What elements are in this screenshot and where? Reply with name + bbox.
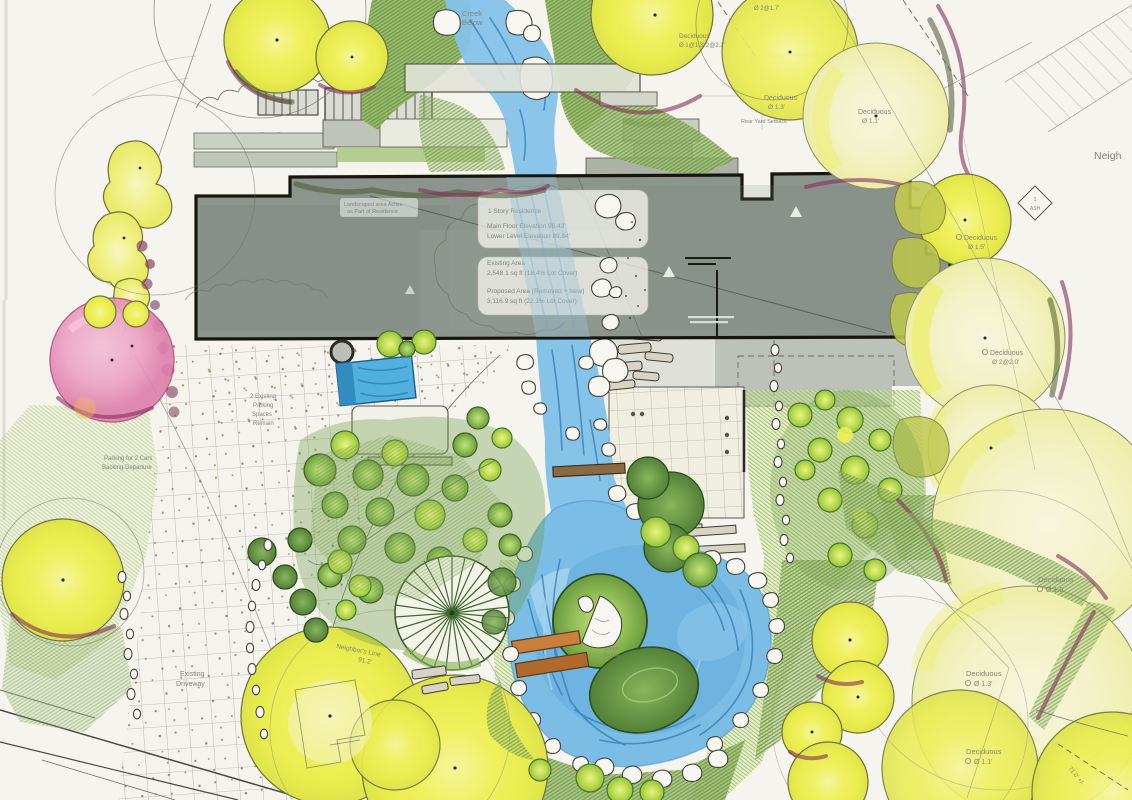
- svg-text:Deciduous: Deciduous: [966, 747, 1002, 756]
- svg-text:Deciduous: Deciduous: [964, 235, 998, 242]
- svg-text:Ø 1.3': Ø 1.3': [768, 104, 785, 111]
- svg-text:Deciduous: Deciduous: [990, 350, 1024, 357]
- svg-text:Ø 1.0': Ø 1.0': [1046, 587, 1064, 594]
- svg-text:Rear Yard Setback: Rear Yard Setback: [741, 119, 787, 125]
- svg-text:Ø 2@2.0': Ø 2@2.0': [992, 359, 1019, 366]
- svg-text:Creek: Creek: [604, 646, 619, 652]
- svg-text:Neigh: Neigh: [1094, 150, 1122, 162]
- svg-text:Parking for 2 Cars: Parking for 2 Cars: [104, 456, 152, 462]
- svg-text:Deciduous: Deciduous: [764, 95, 798, 102]
- svg-text:Deciduous: Deciduous: [1038, 575, 1074, 584]
- svg-text:Below: Below: [604, 653, 619, 659]
- svg-text:Deciduous: Deciduous: [679, 33, 710, 40]
- svg-text:Ø 1@1.3' 2@2.2': Ø 1@1.3' 2@2.2': [679, 43, 725, 49]
- svg-text:Parking: Parking: [253, 403, 273, 409]
- svg-text:1: 1: [1033, 197, 1036, 203]
- svg-text:Existing Area: Existing Area: [487, 260, 525, 267]
- svg-text:Ø 1.5': Ø 1.5': [968, 244, 985, 251]
- svg-text:Driveway: Driveway: [176, 681, 205, 688]
- svg-text:Ø 1.1': Ø 1.1': [974, 759, 992, 766]
- svg-text:Ø 1.3': Ø 1.3': [974, 681, 992, 688]
- svg-text:as Part of Residence: as Part of Residence: [347, 209, 398, 215]
- svg-text:ASH: ASH: [1030, 206, 1041, 212]
- svg-text:Spaces: Spaces: [252, 412, 272, 418]
- svg-text:Deciduous: Deciduous: [858, 109, 892, 116]
- svg-text:Creek: Creek: [462, 9, 482, 18]
- svg-text:Landscaped area Active: Landscaped area Active: [344, 202, 403, 208]
- svg-text:Existing: Existing: [180, 671, 205, 678]
- svg-text:Ø 2@1.7': Ø 2@1.7': [754, 6, 779, 12]
- svg-text:2 Existing: 2 Existing: [250, 394, 276, 400]
- svg-text:Remain: Remain: [253, 421, 274, 427]
- svg-text:Ø 1.1': Ø 1.1': [862, 118, 879, 125]
- svg-text:Deciduous: Deciduous: [966, 669, 1002, 678]
- svg-text:Below: Below: [462, 18, 483, 27]
- svg-text:Backing Departure: Backing Departure: [102, 465, 152, 471]
